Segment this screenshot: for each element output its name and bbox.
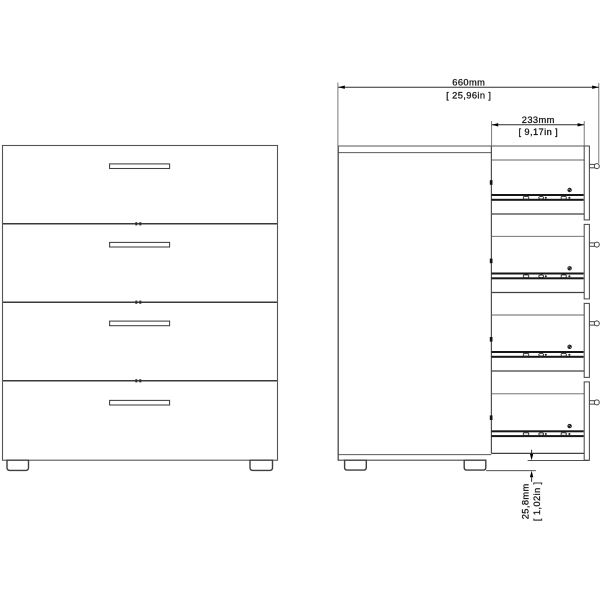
svg-text:25,8mm: 25,8mm — [521, 483, 531, 519]
svg-text:[ 1,02in ]: [ 1,02in ] — [532, 481, 542, 521]
svg-text:660mm: 660mm — [452, 78, 485, 88]
svg-text:[ 25,96in ]: [ 25,96in ] — [446, 90, 491, 100]
svg-text:233mm: 233mm — [522, 115, 555, 125]
svg-text:[ 9,17in ]: [ 9,17in ] — [518, 127, 558, 137]
